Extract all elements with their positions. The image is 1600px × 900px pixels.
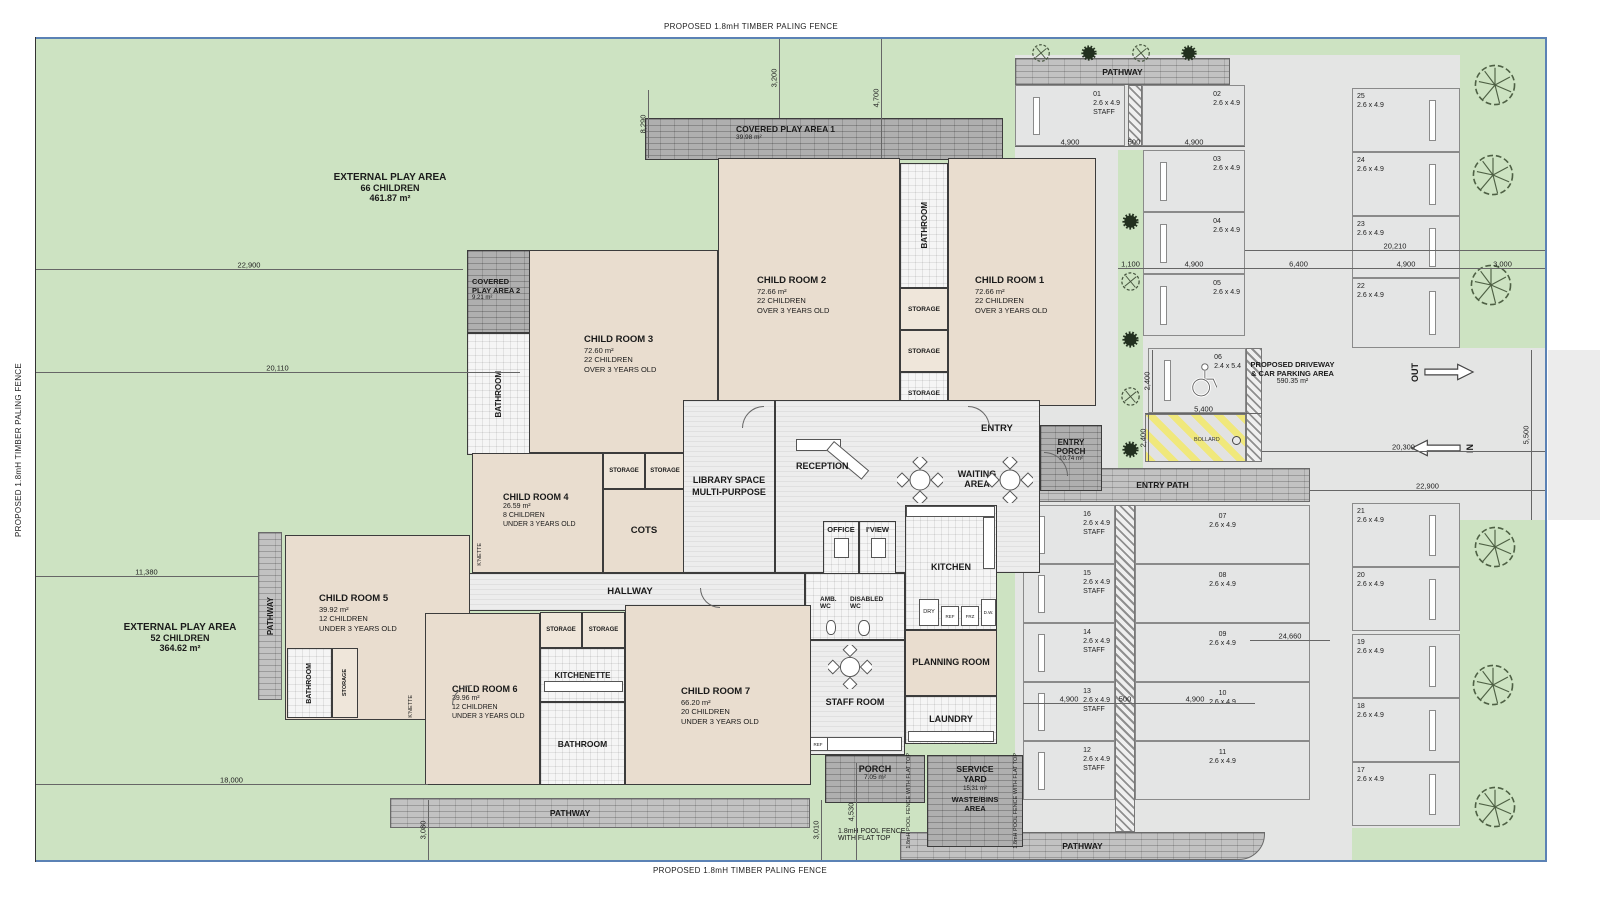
hatch-strip-lower <box>1115 505 1135 832</box>
amb-wc-line2: WC <box>820 603 837 610</box>
room-cots: COTS <box>603 489 685 573</box>
covered-play-2-name1: COVERED <box>472 277 520 286</box>
dim-4900-top-a: 4,900 <box>1015 146 1125 147</box>
knette-2: K'NETTE <box>402 682 420 730</box>
kitchen-counter <box>906 506 995 517</box>
stall-num: 16 <box>1083 510 1110 519</box>
room-storage-2: STORAGE <box>900 330 948 372</box>
room-capacity: 22 CHILDREN <box>584 355 656 364</box>
room-bathroom-bottom: BATHROOM <box>540 702 625 785</box>
boundary-bottom <box>35 860 1547 862</box>
parking-stall-11: 112.6 x 4.9 <box>1135 741 1310 800</box>
shrub-icon <box>1121 212 1140 231</box>
room-iview: I'VIEW <box>859 521 896 574</box>
stall-num: 23 <box>1357 220 1384 229</box>
pathway-bottom-left: PATHWAY <box>390 798 810 828</box>
kitchenette-counter <box>544 681 623 692</box>
stall-num: 20 <box>1357 571 1384 580</box>
parking-stall-10: 102.6 x 4.9 <box>1135 682 1310 741</box>
bollard-icon <box>1232 436 1241 445</box>
parking-stall-03: 032.6 x 4.9 <box>1143 150 1245 212</box>
green-strip-center <box>1118 150 1143 468</box>
room-storage-1: STORAGE <box>900 288 948 330</box>
room-area: 26.59 m² <box>503 503 576 512</box>
room-storage-cr5: STORAGE <box>332 648 358 718</box>
planning-room-label: PLANNING ROOM <box>912 657 990 668</box>
green-strip-bottom <box>1352 828 1545 862</box>
waste-bins-line2: AREA <box>928 804 1022 813</box>
parking-stall-08: 082.6 x 4.9 <box>1135 564 1310 623</box>
stall-num: 04 <box>1213 217 1240 226</box>
room-capacity: 12 CHILDREN <box>319 614 397 623</box>
pathway-left: PATHWAY <box>258 532 282 700</box>
arrow-left-icon <box>1410 438 1462 458</box>
stall-size: 2.6 x 4.9 <box>1357 580 1384 589</box>
dim-4900-low-a: 4,900 <box>1023 703 1115 704</box>
kitchen-label: KITCHEN <box>906 562 996 572</box>
bollard-zone: BOLLARD <box>1145 414 1246 462</box>
pathway-left-label: PATHWAY <box>266 597 275 635</box>
parking-stall-13: 132.6 x 4.9STAFF <box>1023 682 1115 741</box>
laundry-label: LAUNDRY <box>929 714 973 725</box>
room-office: OFFICE <box>823 521 859 574</box>
iview-label: I'VIEW <box>860 525 895 534</box>
stall-tag: STAFF <box>1083 705 1110 714</box>
stall-size: 2.6 x 4.9 <box>1093 99 1120 108</box>
parking-stall-25: 252.6 x 4.9 <box>1352 88 1460 152</box>
stall-num: 19 <box>1357 638 1384 647</box>
room-planning: PLANNING ROOM <box>905 630 997 696</box>
room-age: UNDER 3 YEARS OLD <box>503 521 576 530</box>
stall-size: 2.6 x 4.9 <box>1213 288 1240 297</box>
ext1-capacity: 66 CHILDREN <box>300 183 480 193</box>
cots-label: COTS <box>631 525 657 537</box>
storage-label: STORAGE <box>908 348 940 355</box>
covered-play-1-name: COVERED PLAY AREA 1 <box>736 124 835 134</box>
boundary-left <box>35 37 36 862</box>
stall-num: 03 <box>1213 155 1240 164</box>
room-capacity: 8 CHILDREN <box>503 512 576 521</box>
stall-tag: STAFF <box>1093 108 1120 117</box>
pool-fence-line2: WITH FLAT TOP <box>838 835 918 842</box>
dim-4530: 4,530 <box>856 763 857 860</box>
service-yard: SERVICE YARD 15.31 m² WASTE/BINS AREA <box>927 755 1023 847</box>
knette-label: K'NETTE <box>477 543 483 566</box>
hallway-label: HALLWAY <box>607 586 653 598</box>
dim-20300: 20,300 <box>1262 451 1545 452</box>
covered-play-1-area: 39.98 m² <box>736 134 835 141</box>
dim-22900-left: 22,900 <box>35 269 463 270</box>
pool-fence-label-v2: 1.8mH POOL FENCE WITH FLAT TOP <box>1013 748 1019 853</box>
parking-stall-24: 242.6 x 4.9 <box>1352 152 1460 216</box>
room-kitchenette: KITCHENETTE <box>540 648 625 702</box>
dim-5400: 5,400 <box>1145 413 1262 414</box>
room-laundry: LAUNDRY <box>905 696 997 744</box>
staff-fridge-box: REF <box>808 737 828 751</box>
bush-icon <box>1030 42 1052 64</box>
dim-24660: 24,660 <box>1250 640 1330 641</box>
dim-3010: 3,010 <box>821 800 822 860</box>
shrub-icon <box>1080 44 1098 62</box>
dim-18000: 18,000 <box>35 784 428 785</box>
freezer-box: FRZ <box>961 606 979 626</box>
ext1-name: EXTERNAL PLAY AREA <box>300 172 480 183</box>
room-name: CHILD ROOM 2 <box>757 275 829 287</box>
dw-label: D.W. <box>984 610 994 615</box>
storage-label: STORAGE <box>908 390 940 397</box>
knette-label: K'NETTE <box>408 695 414 718</box>
bush-icon <box>1130 42 1152 64</box>
parking-stall-20: 202.6 x 4.9 <box>1352 567 1460 631</box>
fence-left-text: PROPOSED 1.8mH TIMBER PALING FENCE <box>14 363 23 537</box>
tree-icon <box>1470 662 1516 708</box>
tree-icon <box>1470 152 1516 198</box>
bollard-label: BOLLARD <box>1194 437 1220 443</box>
stall-num: 02 <box>1213 90 1240 99</box>
stall-size: 2.6 x 4.9 <box>1136 580 1309 589</box>
room-storage-6: STORAGE <box>540 612 582 648</box>
dim-4700: 4,700 <box>881 38 882 158</box>
ref-label: REF <box>946 614 955 619</box>
in-arrow: IN <box>1410 438 1475 458</box>
parking-stall-19: 192.6 x 4.9 <box>1352 634 1460 698</box>
pathway-bottom-left-label: PATHWAY <box>550 808 590 818</box>
storage-label: STORAGE <box>609 468 639 474</box>
room-area: 72.66 m² <box>757 287 829 296</box>
kitchenette-label: KITCHENETTE <box>555 671 611 680</box>
room-name: CHILD ROOM 4 <box>503 492 576 503</box>
storage-label: STORAGE <box>546 627 576 633</box>
pathway-bottom-right-label: PATHWAY <box>1062 841 1102 851</box>
amb-wc-line1: AMB. <box>820 596 837 603</box>
external-play-area-1-label: EXTERNAL PLAY AREA 66 CHILDREN 461.87 m² <box>300 172 480 203</box>
stall-size: 2.6 x 4.9 <box>1357 775 1384 784</box>
waiting-table-icon <box>987 457 1033 503</box>
stall-size: 2.6 x 4.9 <box>1357 647 1384 656</box>
dim-2400-b: 2,400 <box>1148 414 1149 462</box>
dim-4900-mid: 4,900 <box>1143 268 1245 269</box>
stall-num: 25 <box>1357 92 1384 101</box>
stall-num: 08 <box>1136 571 1309 580</box>
room-age: UNDER 3 YEARS OLD <box>681 717 759 726</box>
stall-size: 2.6 x 4.9 <box>1357 711 1384 720</box>
stall-num: 10 <box>1136 689 1309 698</box>
room-child-room-4: CHILD ROOM 4 26.59 m² 8 CHILDREN UNDER 3… <box>472 453 603 573</box>
stall-size: 2.6 x 4.9 <box>1083 755 1110 764</box>
stall-num: 15 <box>1083 569 1110 578</box>
dim-3080: 3,080 <box>428 800 429 860</box>
driveway-line2: & CAR PARKING AREA <box>1235 369 1350 378</box>
room-age: OVER 3 YEARS OLD <box>757 306 829 315</box>
room-bathroom-cr5: BATHROOM <box>287 648 332 718</box>
covered-play-area-1: COVERED PLAY AREA 1 39.98 m² <box>645 118 1003 160</box>
stall-size: 2.6 x 4.9 <box>1357 165 1384 174</box>
stall-num: 01 <box>1093 90 1120 99</box>
stall-num: 17 <box>1357 766 1384 775</box>
room-storage-7: STORAGE <box>582 612 625 648</box>
stall-size: 2.6 x 4.9 <box>1357 101 1384 110</box>
pool-fence-text: 1.8mH POOL FENCE WITH FLAT TOP <box>1013 753 1019 849</box>
toilet-icon <box>826 620 836 635</box>
room-storage-5: STORAGE <box>645 453 685 489</box>
stall-size: 2.6 x 4.9 <box>1357 516 1384 525</box>
bathroom-label: BATHROOM <box>494 371 503 418</box>
parking-stall-14: 142.6 x 4.9STAFF <box>1023 623 1115 682</box>
boundary-top <box>35 37 1547 39</box>
library-line2: MULTI-PURPOSE <box>692 487 766 498</box>
library-line1: LIBRARY SPACE <box>692 475 766 486</box>
covered-play-2-name2: PLAY AREA 2 <box>472 286 520 295</box>
room-area: 66.20 m² <box>681 698 759 707</box>
dry-label: DRY <box>923 609 935 615</box>
boundary-right <box>1545 37 1547 862</box>
bathroom-label: BATHROOM <box>306 663 313 704</box>
parking-stall-18: 182.6 x 4.9 <box>1352 698 1460 762</box>
ext2-area: 364.62 m² <box>95 643 265 653</box>
parking-stall-17: 172.6 x 4.9 <box>1352 762 1460 826</box>
dim-4900-top-b: 4,900 <box>1143 146 1245 147</box>
entry-path-label: ENTRY PATH <box>1136 480 1189 490</box>
room-area: 39.92 m² <box>319 605 397 614</box>
dim-20210: 20,210 <box>1245 250 1545 251</box>
office-label: OFFICE <box>824 525 858 534</box>
fence-label-top: PROPOSED 1.8mH TIMBER PALING FENCE <box>646 22 856 31</box>
stall-tag: STAFF <box>1083 528 1110 537</box>
laundry-counter <box>908 731 994 742</box>
stall-size: 2.6 x 4.9 <box>1136 521 1309 530</box>
stall-num: 05 <box>1213 279 1240 288</box>
stall-size: 2.6 x 4.9 <box>1083 578 1110 587</box>
shrub-icon <box>1180 44 1198 62</box>
wheelchair-icon <box>1189 361 1217 401</box>
room-capacity: 22 CHILDREN <box>975 296 1047 305</box>
dim-3200: 3,200 <box>779 38 780 118</box>
ext1-area: 461.87 m² <box>300 193 480 203</box>
room-bathroom-left: BATHROOM <box>467 333 530 455</box>
dim-5500: 5,500 <box>1531 350 1532 520</box>
stall-tag: STAFF <box>1083 646 1110 655</box>
room-child-room-1: CHILD ROOM 1 72.66 m² 22 CHILDREN OVER 3… <box>948 158 1096 406</box>
toilet-icon <box>858 620 870 636</box>
dim-2400-a: 2,400 <box>1152 350 1153 412</box>
stall-num: 18 <box>1357 702 1384 711</box>
covered-play-2-area: 9.21 m² <box>472 295 520 301</box>
dim-500-low: 500 <box>1115 703 1135 704</box>
stall-tag: STAFF <box>1083 587 1110 596</box>
tree-icon <box>1472 784 1518 830</box>
stall-size: 2.6 x 4.9 <box>1083 637 1110 646</box>
stall-num: 22 <box>1357 282 1384 291</box>
dim-22900-driveway: 22,900 <box>1310 490 1545 491</box>
room-name: CHILD ROOM 1 <box>975 275 1047 287</box>
room-child-room-6: CHILD ROOM 6 39.96 m² 12 CHILDREN UNDER … <box>425 613 540 785</box>
dim-4900-right: 4,900 <box>1352 268 1460 269</box>
reception-label: RECEPTION <box>796 461 849 471</box>
staff-table-icon <box>828 645 872 689</box>
stall-tag: STAFF <box>1083 764 1110 773</box>
bush-icon <box>1119 270 1142 293</box>
room-capacity: 22 CHILDREN <box>757 296 829 305</box>
bathroom-label: BATHROOM <box>558 739 607 749</box>
out-label: OUT <box>1410 363 1420 382</box>
room-name: CHILD ROOM 7 <box>681 686 759 698</box>
disabled-wc-line2: WC <box>850 603 883 610</box>
room-staff: STAFF ROOM REF <box>805 640 905 755</box>
entry-porch-line1: ENTRY <box>1041 438 1101 447</box>
parking-stall-22: 222.6 x 4.9 <box>1352 278 1460 348</box>
desk-icon <box>834 538 849 558</box>
driveway-area: 590.35 m² <box>1235 378 1350 385</box>
room-name: CHILD ROOM 5 <box>319 593 397 605</box>
parking-stall-06-disabled: 062.4 x 5.4 <box>1148 348 1246 413</box>
stall-size: 2.6 x 4.9 <box>1213 164 1240 173</box>
room-age: OVER 3 YEARS OLD <box>975 306 1047 315</box>
road-stub <box>1548 350 1600 520</box>
dim-500-top: 500 <box>1125 146 1143 147</box>
room-kitchen: KITCHEN DRY REF FRZ D.W. <box>905 505 997 630</box>
stall-size: 2.6 x 4.9 <box>1357 291 1384 300</box>
room-amb-wc: AMB. WC <box>820 596 837 610</box>
ref-label: REF <box>814 742 823 747</box>
stall-num: 14 <box>1083 628 1110 637</box>
ext2-capacity: 52 CHILDREN <box>95 633 265 643</box>
service-yard-line2: YARD <box>928 774 1022 784</box>
stall-size: 2.6 x 4.9 <box>1136 757 1309 766</box>
room-bathroom-top: BATHROOM <box>900 163 948 288</box>
stall-num: 07 <box>1136 512 1309 521</box>
frz-label: FRZ <box>966 614 975 619</box>
room-storage-4: STORAGE <box>603 453 645 489</box>
stall-size: 2.6 x 4.9 <box>1357 229 1384 238</box>
shrub-icon <box>1121 440 1140 459</box>
stall-size: 2.6 x 4.9 <box>1083 519 1110 528</box>
parking-stall-21: 212.6 x 4.9 <box>1352 503 1460 567</box>
desk-icon <box>871 538 886 558</box>
arrow-right-icon <box>1423 362 1475 382</box>
disabled-wc-line1: DISABLED <box>850 596 883 603</box>
dim-8290: 8,290 <box>648 90 649 158</box>
room-area: 72.66 m² <box>975 287 1047 296</box>
tree-icon <box>1472 524 1518 570</box>
dim-20110: 20,110 <box>35 372 520 373</box>
stall-num: 11 <box>1136 748 1309 757</box>
stall-size: 2.6 x 4.9 <box>1213 99 1240 108</box>
fridge-box: REF <box>941 606 959 626</box>
dryer-box: DRY <box>919 599 939 626</box>
room-area: 72.60 m² <box>584 346 656 355</box>
storage-label: STORAGE <box>650 468 680 474</box>
parking-stall-05: 052.6 x 4.9 <box>1143 274 1245 336</box>
room-age: UNDER 3 YEARS OLD <box>319 624 397 633</box>
covered-play-area-2: COVERED PLAY AREA 2 9.21 m² <box>467 250 530 333</box>
dim-4900-low-b: 4,900 <box>1135 703 1255 704</box>
storage-label: STORAGE <box>342 669 348 696</box>
out-arrow: OUT <box>1410 362 1475 382</box>
ext2-name: EXTERNAL PLAY AREA <box>95 622 265 633</box>
room-capacity: 12 CHILDREN <box>452 704 525 713</box>
room-name: CHILD ROOM 3 <box>584 334 656 346</box>
dishwasher-box: D.W. <box>981 599 996 626</box>
dim-1100: 1,100 <box>1118 268 1143 269</box>
bathroom-label: BATHROOM <box>920 202 929 249</box>
dim-11380: 11,380 <box>35 576 258 577</box>
stall-num: 24 <box>1357 156 1384 165</box>
driveway-label: PROPOSED DRIVEWAY & CAR PARKING AREA 590… <box>1235 360 1350 385</box>
bush-icon <box>1119 385 1142 408</box>
staff-room-label: STAFF ROOM <box>806 697 904 707</box>
pool-fence-label-h: 1.8mH POOL FENCE WITH FLAT TOP <box>838 828 918 842</box>
wc-block: AMB. WC DISABLED WC <box>805 573 905 640</box>
dim-6400: 6,400 <box>1245 268 1352 269</box>
storage-label: STORAGE <box>908 306 940 313</box>
room-child-room-2: CHILD ROOM 2 72.66 m² 22 CHILDREN OVER 3… <box>718 158 900 406</box>
stall-num: 13 <box>1083 687 1110 696</box>
tree-icon <box>1472 62 1518 108</box>
service-yard-area: 15.31 m² <box>928 786 1022 792</box>
room-age: OVER 3 YEARS OLD <box>584 365 656 374</box>
stall-num: 21 <box>1357 507 1384 516</box>
waiting-table-icon <box>897 457 943 503</box>
room-disabled-wc: DISABLED WC <box>850 596 883 610</box>
driveway-line1: PROPOSED DRIVEWAY <box>1235 360 1350 369</box>
waste-bins-line1: WASTE/BINS <box>928 795 1022 804</box>
stall-num: 12 <box>1083 746 1110 755</box>
room-age: UNDER 3 YEARS OLD <box>452 713 525 722</box>
service-yard-line1: SERVICE <box>928 764 1022 774</box>
pathway-top-label: PATHWAY <box>1102 67 1142 77</box>
stall-size: 2.6 x 4.9 <box>1213 226 1240 235</box>
parking-stall-12: 122.6 x 4.9STAFF <box>1023 741 1115 800</box>
fence-label-bottom: PROPOSED 1.8mH TIMBER PALING FENCE <box>630 866 850 875</box>
shrub-icon <box>1121 330 1140 349</box>
room-child-room-7: CHILD ROOM 7 66.20 m² 20 CHILDREN UNDER … <box>625 605 811 785</box>
dim-3000: 3,000 <box>1460 268 1545 269</box>
parking-stall-07: 072.6 x 4.9 <box>1135 505 1310 564</box>
fence-label-left: PROPOSED 1.8mH TIMBER PALING FENCE <box>14 280 23 620</box>
external-play-area-2-label: EXTERNAL PLAY AREA 52 CHILDREN 364.62 m² <box>95 622 265 653</box>
storage-label: STORAGE <box>589 627 619 633</box>
room-capacity: 20 CHILDREN <box>681 707 759 716</box>
site-plan: PATHWAY ENTRY PATH PATHWAY 012.6 x 4.9ST… <box>0 0 1600 900</box>
pool-fence-line1: 1.8mH POOL FENCE <box>838 828 918 835</box>
